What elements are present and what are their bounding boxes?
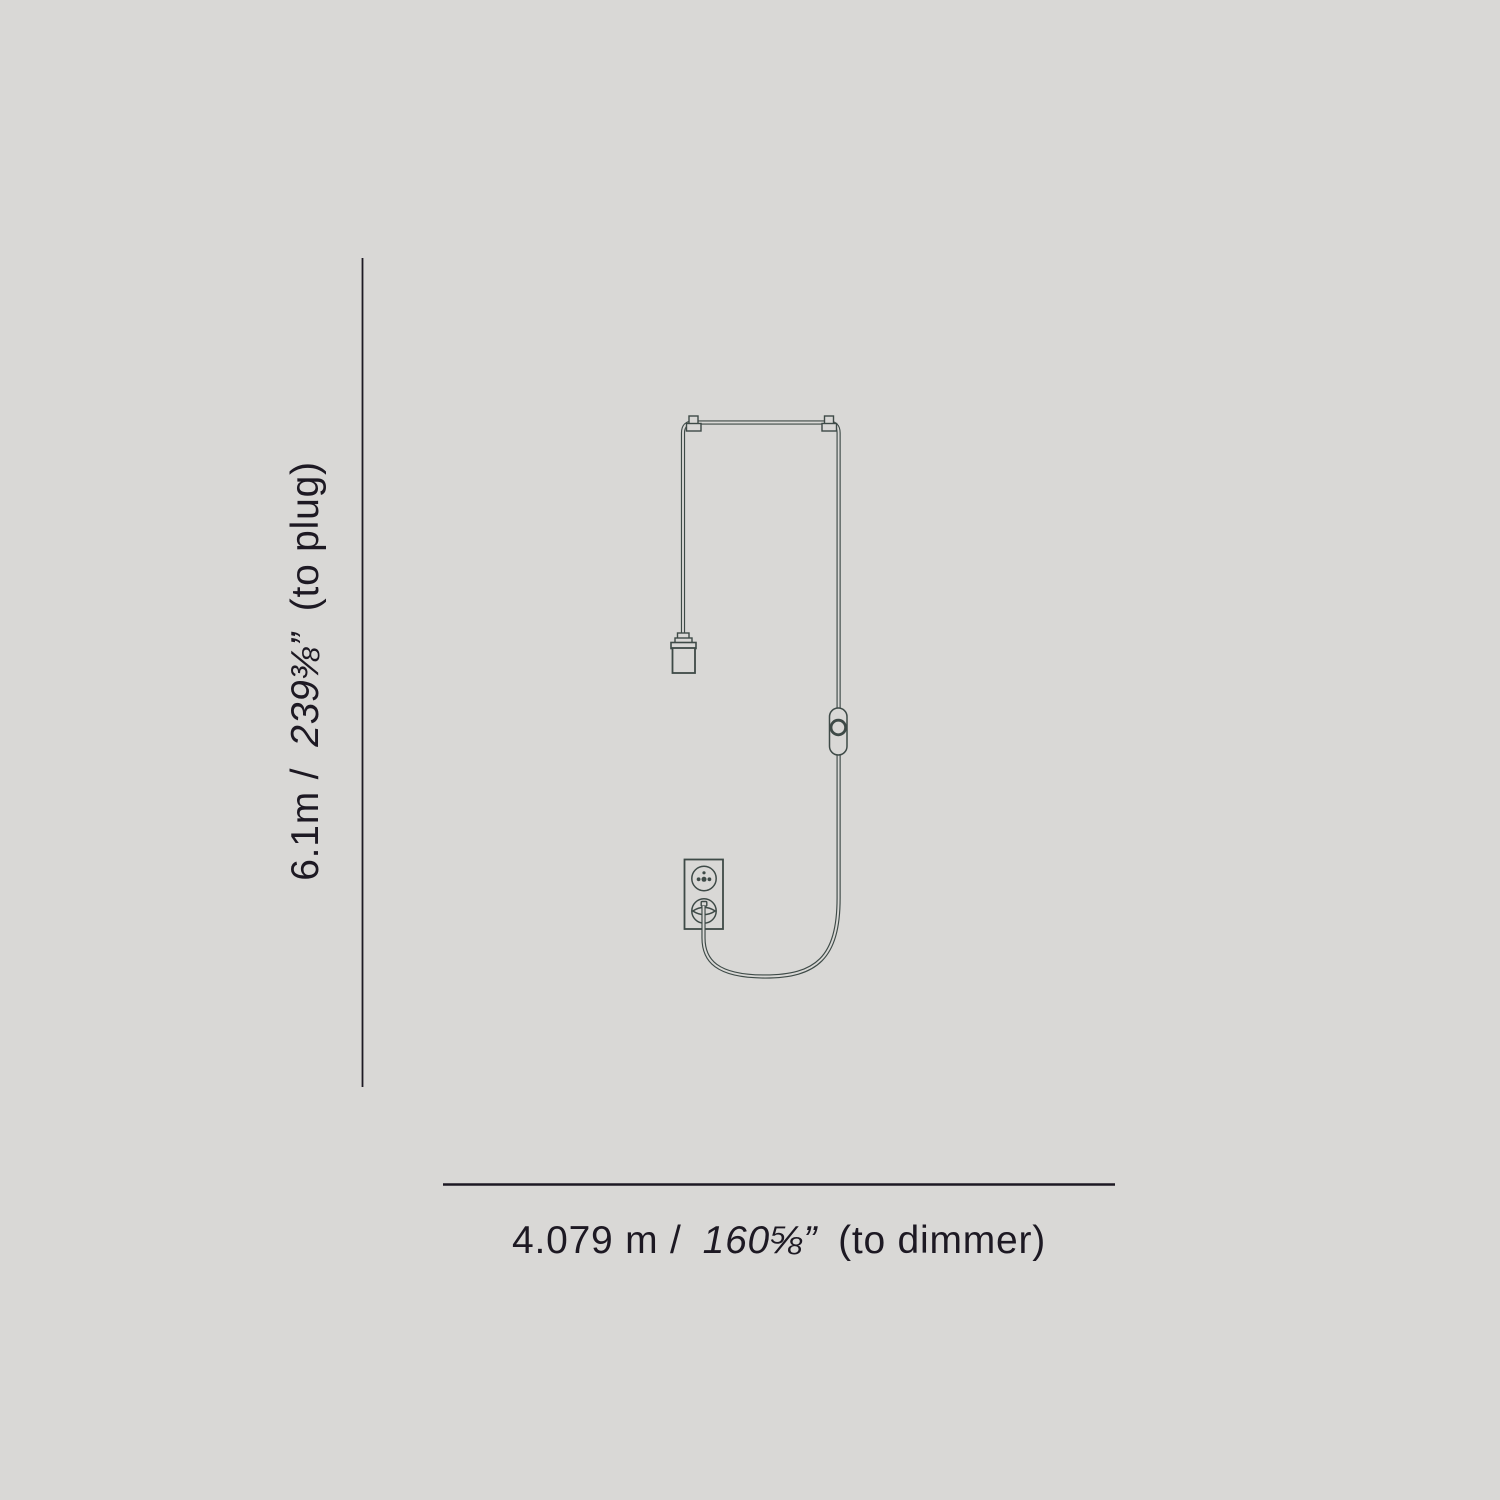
right-clip-icon: [822, 416, 837, 431]
vertical-label-suffix: (to plug): [284, 461, 327, 611]
left-clip-icon: [687, 416, 702, 431]
lamp-socket-icon: [671, 633, 696, 673]
horizontal-label-suffix: (to dimmer): [838, 1219, 1046, 1262]
horizontal-dimension-label: 4.079 m / 160⅝” (to dimmer): [512, 1219, 1046, 1263]
horizontal-imperial-value: 160⅝”: [703, 1219, 817, 1262]
lamp-cord-diagram: [0, 0, 1500, 1500]
dimmer-icon: [830, 708, 848, 755]
diagram-canvas: 6.1m / 239⅜” (to plug) 4.079 m / 160⅝” (…: [0, 0, 1500, 1500]
horizontal-metric-value: 4.079 m /: [512, 1219, 682, 1262]
suspension-cable: [683, 423, 839, 716]
vertical-dimension-label: 6.1m / 239⅜” (to plug): [284, 461, 328, 881]
vertical-metric-value: 6.1m /: [284, 768, 327, 881]
vertical-imperial-value: 239⅜”: [284, 632, 327, 746]
